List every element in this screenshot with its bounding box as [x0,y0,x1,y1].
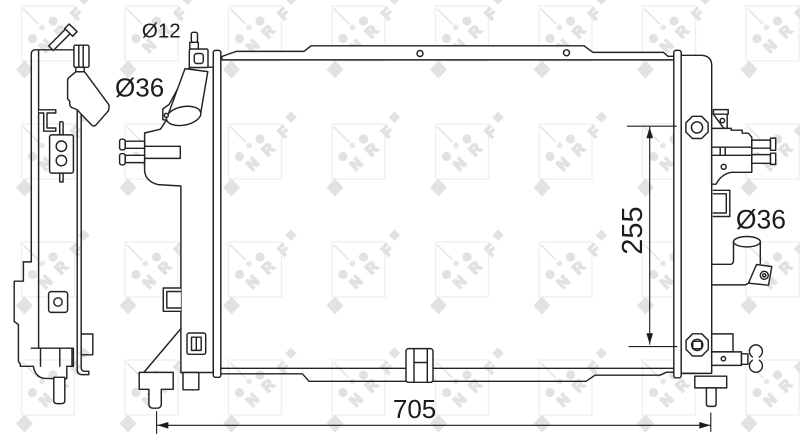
svg-text:705: 705 [393,394,436,424]
svg-text:Ø36: Ø36 [736,205,786,235]
svg-text:Ø36: Ø36 [115,72,164,102]
svg-text:255: 255 [617,206,649,254]
svg-text:Ø12: Ø12 [142,20,181,43]
